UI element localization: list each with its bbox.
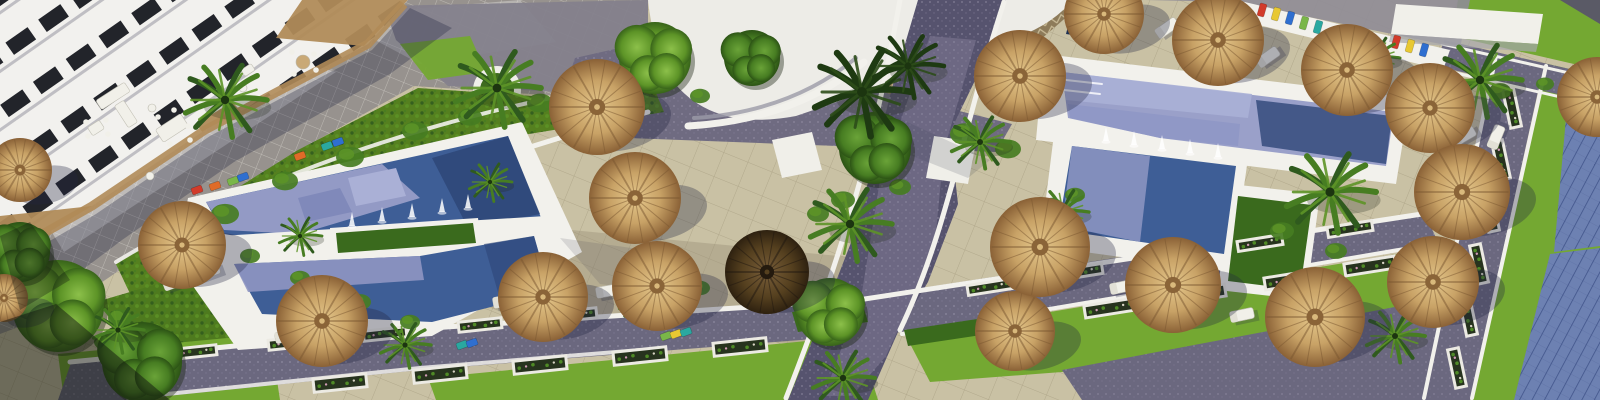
chair	[171, 107, 177, 113]
chair	[187, 137, 193, 143]
aerial-resort-scene	[0, 0, 1600, 400]
chair	[103, 117, 109, 123]
shrub	[690, 89, 710, 103]
shrub	[1325, 243, 1347, 259]
chair	[105, 131, 111, 137]
chair	[289, 49, 295, 55]
chair	[311, 51, 317, 57]
shrub	[272, 172, 298, 191]
chair	[85, 133, 91, 139]
shrub	[1270, 222, 1294, 239]
outdoor-table	[296, 55, 310, 69]
shrub	[402, 122, 428, 141]
chair	[83, 119, 89, 125]
shrub	[400, 315, 420, 329]
shrub	[1536, 78, 1554, 91]
chair	[313, 67, 319, 73]
chair	[155, 114, 161, 120]
outdoor-table	[148, 104, 156, 112]
outdoor-table	[146, 172, 154, 180]
shrub	[336, 147, 364, 167]
chair	[185, 123, 191, 129]
chair	[151, 131, 157, 137]
aerial-resort-render	[0, 0, 1600, 400]
chair	[291, 71, 297, 77]
chair	[167, 141, 173, 147]
